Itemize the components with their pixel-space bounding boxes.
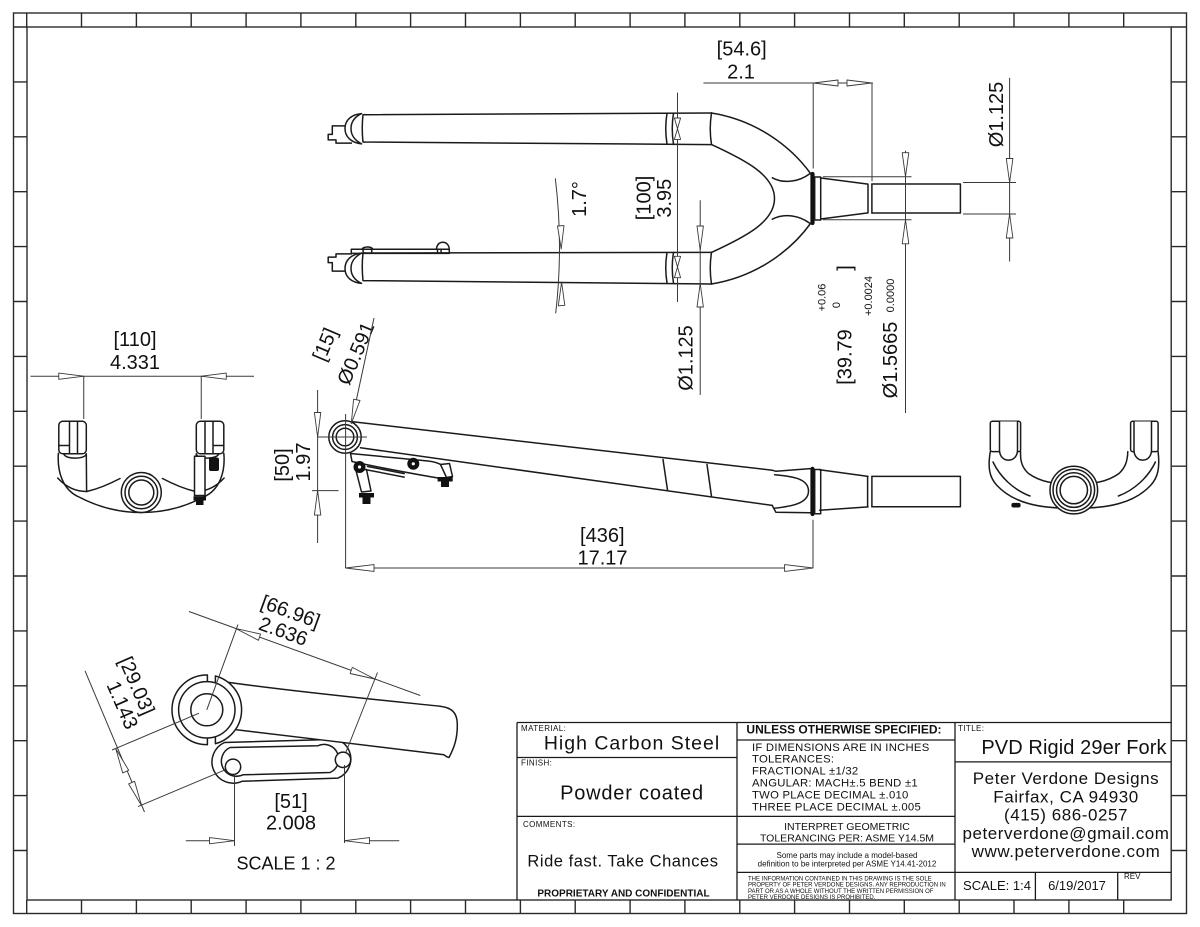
svg-text:PROPRIETARY AND CONFIDENTIAL: PROPRIETARY AND CONFIDENTIAL [537, 889, 709, 900]
svg-text:definition to be interpreted p: definition to be interpreted per ASME Y1… [758, 860, 937, 869]
svg-text:SCALE 1 : 2: SCALE 1 : 2 [236, 854, 335, 874]
svg-text:Ø1.125: Ø1.125 [676, 325, 698, 391]
svg-text:Ø1.5665: Ø1.5665 [880, 322, 902, 399]
svg-text:Fairfax, CA 94930: Fairfax, CA 94930 [993, 787, 1138, 806]
svg-text:High Carbon Steel: High Carbon Steel [544, 733, 720, 755]
svg-text:3.95: 3.95 [654, 179, 676, 218]
svg-text:PROPERTY OF PETER VERDONE DESI: PROPERTY OF PETER VERDONE DESIGNS. ANY R… [748, 883, 946, 889]
svg-text:www.peterverdone.com: www.peterverdone.com [971, 842, 1161, 861]
svg-text:+0.0024: +0.0024 [863, 276, 875, 316]
svg-text:TWO PLACE DECIMAL ±.010: TWO PLACE DECIMAL ±.010 [752, 790, 909, 802]
svg-text:ANGULAR: MACH±.5 BEND ±1: ANGULAR: MACH±.5 BEND ±1 [752, 778, 918, 790]
svg-text:6/19/2017: 6/19/2017 [1048, 878, 1106, 893]
svg-text:COMMENTS:: COMMENTS: [523, 820, 576, 829]
svg-text:0: 0 [831, 302, 843, 308]
svg-text:[50]: [50] [272, 448, 294, 481]
svg-text:Ride fast. Take Chances: Ride fast. Take Chances [527, 853, 718, 871]
svg-text:[100]: [100] [634, 176, 656, 220]
svg-text:Peter Verdone Designs: Peter Verdone Designs [973, 769, 1159, 788]
svg-text:REV: REV [1124, 872, 1141, 881]
svg-text:4.331: 4.331 [110, 352, 160, 374]
svg-text:1.7°: 1.7° [569, 181, 591, 217]
svg-text:IF DIMENSIONS ARE IN INCHES: IF DIMENSIONS ARE IN INCHES [752, 742, 930, 754]
svg-text:1.97: 1.97 [293, 443, 315, 482]
svg-text:Powder coated: Powder coated [560, 783, 704, 805]
svg-text:0.0000: 0.0000 [885, 279, 897, 313]
svg-text:FINISH:: FINISH: [521, 759, 552, 768]
svg-text:PART OR AS A WHOLE WITHOUT THE: PART OR AS A WHOLE WITHOUT THE WRITTEN P… [748, 889, 934, 895]
svg-text:SCALE: 1:4: SCALE: 1:4 [963, 878, 1031, 893]
svg-text:[54.6]: [54.6] [717, 39, 767, 61]
svg-text:Ø1.125: Ø1.125 [986, 82, 1008, 148]
svg-text:THREE PLACE DECIMAL ±.005: THREE PLACE DECIMAL ±.005 [752, 802, 921, 814]
svg-text:PVD Rigid 29er Fork: PVD Rigid 29er Fork [981, 737, 1167, 759]
svg-text:(415) 686-0257: (415) 686-0257 [1004, 806, 1128, 825]
svg-text:TOLERANCES:: TOLERANCES: [752, 754, 834, 766]
svg-text:[110]: [110] [114, 329, 157, 351]
svg-text:[39.79: [39.79 [835, 329, 857, 385]
svg-text:THE INFORMATION CONTAINED IN T: THE INFORMATION CONTAINED IN THIS DRAWIN… [748, 877, 932, 883]
svg-text:UNLESS OTHERWISE SPECIFIED:: UNLESS OTHERWISE SPECIFIED: [746, 723, 941, 737]
svg-text:PETER VERDONE DESIGNS IS PROHI: PETER VERDONE DESIGNS IS PROHIBITED. [748, 895, 876, 901]
svg-text:2.008: 2.008 [266, 813, 316, 835]
svg-text:TOLERANCING PER: ASME Y14.5M: TOLERANCING PER: ASME Y14.5M [760, 833, 934, 845]
svg-text:peterverdone@gmail.com: peterverdone@gmail.com [962, 824, 1169, 843]
svg-text:FRACTIONAL ±1/32: FRACTIONAL ±1/32 [752, 766, 858, 778]
svg-text:TITLE:: TITLE: [958, 724, 984, 733]
svg-text:[51]: [51] [274, 791, 307, 813]
svg-text:INTERPRET GEOMETRIC: INTERPRET GEOMETRIC [784, 821, 910, 833]
svg-text:17.17: 17.17 [577, 548, 627, 570]
svg-text:]: ] [835, 265, 857, 271]
svg-text:+0.06: +0.06 [817, 284, 829, 312]
svg-text:2.1: 2.1 [727, 62, 755, 84]
svg-text:[436]: [436] [580, 525, 624, 547]
